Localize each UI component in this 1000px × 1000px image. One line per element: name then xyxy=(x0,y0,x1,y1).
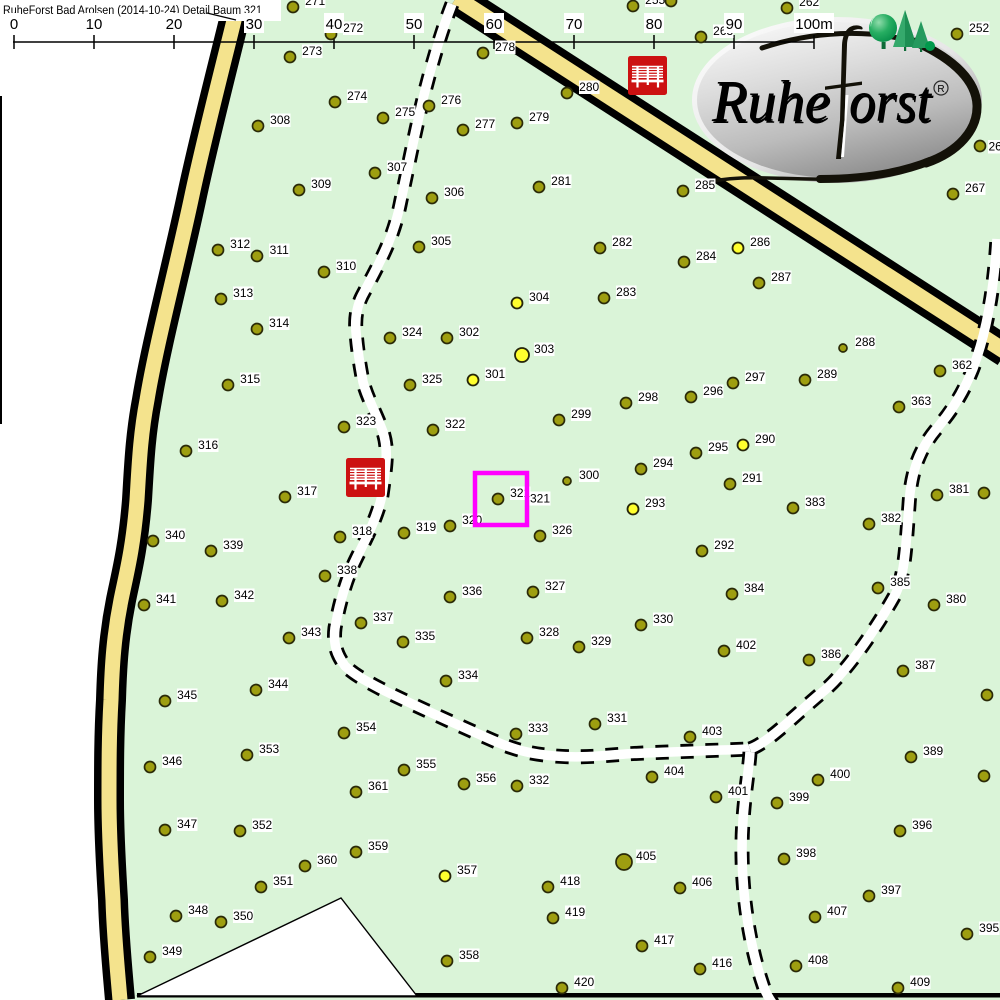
svg-text:339: 339 xyxy=(223,538,243,552)
svg-text:397: 397 xyxy=(881,883,901,897)
svg-text:358: 358 xyxy=(459,948,479,962)
svg-text:289: 289 xyxy=(817,367,837,381)
svg-text:416: 416 xyxy=(712,956,732,970)
svg-text:405: 405 xyxy=(636,849,656,863)
svg-text:305: 305 xyxy=(431,234,451,248)
svg-text:417: 417 xyxy=(654,933,674,947)
svg-text:274: 274 xyxy=(347,89,367,103)
svg-text:420: 420 xyxy=(574,975,594,989)
svg-text:285: 285 xyxy=(695,178,715,192)
svg-text:323: 323 xyxy=(356,414,376,428)
svg-text:347: 347 xyxy=(177,817,197,831)
svg-text:348: 348 xyxy=(188,903,208,917)
svg-text:360: 360 xyxy=(317,853,337,867)
svg-text:296: 296 xyxy=(703,384,723,398)
svg-text:279: 279 xyxy=(529,110,549,124)
svg-text:402: 402 xyxy=(736,638,756,652)
svg-text:400: 400 xyxy=(830,767,850,781)
svg-text:399: 399 xyxy=(789,790,809,804)
svg-text:290: 290 xyxy=(755,432,775,446)
svg-text:40: 40 xyxy=(326,16,343,33)
svg-text:281: 281 xyxy=(551,174,571,188)
svg-text:418: 418 xyxy=(560,874,580,888)
svg-text:408: 408 xyxy=(808,953,828,967)
svg-text:361: 361 xyxy=(368,779,388,793)
svg-text:342: 342 xyxy=(234,588,254,602)
svg-text:336: 336 xyxy=(462,584,482,598)
svg-text:RuheForst Bad Arolsen (2014-10: RuheForst Bad Arolsen (2014-10-24) Detai… xyxy=(3,3,262,17)
svg-text:304: 304 xyxy=(529,290,549,304)
svg-text:273: 273 xyxy=(302,44,322,58)
svg-text:311: 311 xyxy=(270,243,289,257)
svg-text:321: 321 xyxy=(530,492,550,506)
svg-text:60: 60 xyxy=(486,16,503,33)
svg-text:382: 382 xyxy=(881,511,901,525)
svg-text:346: 346 xyxy=(162,754,182,768)
svg-text:362: 362 xyxy=(952,358,972,372)
svg-text:90: 90 xyxy=(726,16,743,33)
svg-text:357: 357 xyxy=(457,863,477,877)
svg-text:343: 343 xyxy=(301,625,321,639)
svg-text:363: 363 xyxy=(911,394,931,408)
svg-text:278: 278 xyxy=(495,40,515,54)
svg-text:297: 297 xyxy=(745,370,765,384)
svg-text:404: 404 xyxy=(664,764,684,778)
svg-text:351: 351 xyxy=(273,874,293,888)
svg-text:380: 380 xyxy=(946,592,966,606)
svg-text:329: 329 xyxy=(591,634,611,648)
svg-text:401: 401 xyxy=(728,784,748,798)
svg-text:252: 252 xyxy=(969,21,989,35)
svg-text:395: 395 xyxy=(979,921,999,935)
svg-text:orst: orst xyxy=(849,68,932,134)
svg-text:328: 328 xyxy=(539,625,559,639)
svg-text:325: 325 xyxy=(422,372,442,386)
svg-text:302: 302 xyxy=(459,325,479,339)
svg-text:353: 353 xyxy=(259,742,279,756)
svg-text:384: 384 xyxy=(744,581,764,595)
svg-text:293: 293 xyxy=(645,496,665,510)
svg-text:383: 383 xyxy=(805,495,825,509)
svg-text:298: 298 xyxy=(638,390,658,404)
svg-text:10: 10 xyxy=(86,16,103,33)
svg-text:317: 317 xyxy=(297,484,317,498)
svg-text:300: 300 xyxy=(579,468,599,482)
svg-text:307: 307 xyxy=(387,160,407,174)
svg-text:409: 409 xyxy=(910,975,930,989)
svg-text:313: 313 xyxy=(233,286,253,300)
svg-text:294: 294 xyxy=(653,456,673,470)
svg-text:Ruhe: Ruhe xyxy=(711,68,830,134)
svg-text:403: 403 xyxy=(702,724,722,738)
svg-text:389: 389 xyxy=(923,744,943,758)
svg-text:262: 262 xyxy=(799,0,819,9)
svg-text:345: 345 xyxy=(177,688,197,702)
svg-text:80: 80 xyxy=(646,16,663,33)
svg-text:50: 50 xyxy=(406,16,423,33)
svg-text:396: 396 xyxy=(912,818,932,832)
svg-text:352: 352 xyxy=(252,818,272,832)
svg-text:338: 338 xyxy=(337,563,357,577)
svg-text:267: 267 xyxy=(965,181,985,195)
svg-text:349: 349 xyxy=(162,944,182,958)
svg-text:271: 271 xyxy=(305,0,325,8)
svg-text:309: 309 xyxy=(311,177,331,191)
svg-text:319: 319 xyxy=(416,520,436,534)
svg-text:303: 303 xyxy=(534,342,554,356)
svg-text:277: 277 xyxy=(475,117,495,131)
svg-text:306: 306 xyxy=(444,185,464,199)
svg-text:332: 332 xyxy=(529,773,549,787)
svg-text:268: 268 xyxy=(988,139,1000,153)
svg-text:284: 284 xyxy=(696,249,716,263)
svg-text:287: 287 xyxy=(771,270,791,284)
svg-text:333: 333 xyxy=(528,721,548,735)
svg-text:407: 407 xyxy=(827,904,847,918)
svg-text:330: 330 xyxy=(653,612,673,626)
svg-text:312: 312 xyxy=(230,237,250,251)
svg-text:324: 324 xyxy=(402,325,422,339)
svg-text:334: 334 xyxy=(458,668,478,682)
svg-text:356: 356 xyxy=(476,771,496,785)
svg-text:419: 419 xyxy=(565,905,585,919)
svg-text:292: 292 xyxy=(714,538,734,552)
svg-text:337: 337 xyxy=(373,610,393,624)
svg-text:331: 331 xyxy=(607,711,627,725)
svg-text:299: 299 xyxy=(571,407,591,421)
svg-text:387: 387 xyxy=(915,658,935,672)
svg-text:335: 335 xyxy=(415,629,435,643)
svg-text:385: 385 xyxy=(890,575,910,589)
svg-text:316: 316 xyxy=(198,438,218,452)
svg-text:280: 280 xyxy=(579,80,599,94)
svg-text:20: 20 xyxy=(166,16,183,33)
svg-text:310: 310 xyxy=(336,259,356,273)
svg-text:288: 288 xyxy=(855,335,875,349)
svg-text:355: 355 xyxy=(416,757,436,771)
svg-text:255: 255 xyxy=(645,0,665,7)
svg-text:322: 322 xyxy=(445,417,465,431)
svg-text:308: 308 xyxy=(270,113,290,127)
svg-text:354: 354 xyxy=(356,720,376,734)
svg-text:326: 326 xyxy=(552,523,572,537)
svg-text:344: 344 xyxy=(268,677,288,691)
svg-text:340: 340 xyxy=(165,528,185,542)
svg-text:314: 314 xyxy=(269,316,289,330)
svg-text:386: 386 xyxy=(821,647,841,661)
svg-text:275: 275 xyxy=(395,105,415,119)
svg-text:70: 70 xyxy=(566,16,583,33)
svg-text:350: 350 xyxy=(233,909,253,923)
svg-text:406: 406 xyxy=(692,875,712,889)
svg-text:100m: 100m xyxy=(795,16,833,33)
svg-text:359: 359 xyxy=(368,839,388,853)
svg-text:341: 341 xyxy=(156,592,176,606)
svg-text:286: 286 xyxy=(750,235,770,249)
svg-text:381: 381 xyxy=(949,482,969,496)
svg-text:276: 276 xyxy=(441,93,461,107)
svg-text:283: 283 xyxy=(616,285,636,299)
svg-text:291: 291 xyxy=(742,471,762,485)
svg-text:301: 301 xyxy=(485,367,505,381)
svg-text:0: 0 xyxy=(10,16,18,33)
svg-text:30: 30 xyxy=(246,16,263,33)
svg-text:R: R xyxy=(937,84,944,95)
svg-text:327: 327 xyxy=(545,579,565,593)
svg-text:315: 315 xyxy=(240,372,260,386)
svg-text:272: 272 xyxy=(343,21,363,35)
svg-text:318: 318 xyxy=(352,524,372,538)
svg-text:282: 282 xyxy=(612,235,632,249)
svg-text:398: 398 xyxy=(796,846,816,860)
svg-text:295: 295 xyxy=(708,440,728,454)
